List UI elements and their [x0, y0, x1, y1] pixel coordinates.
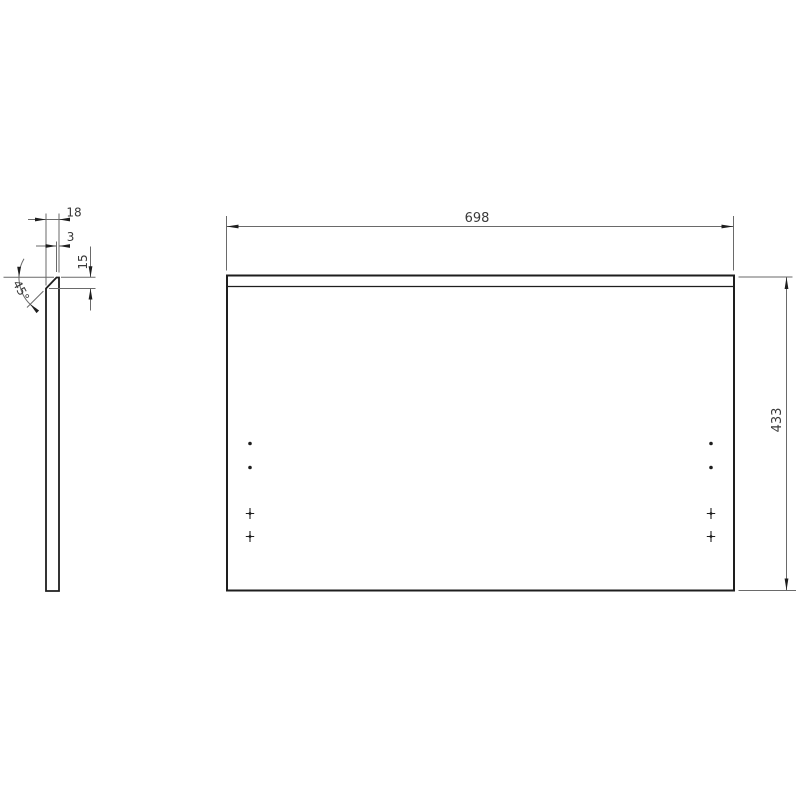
arrow-down-icon: [17, 267, 21, 278]
panel-outline: [227, 276, 734, 591]
hole-mark-dot: [248, 442, 252, 446]
dim-thickness-label: 18: [66, 206, 81, 220]
hole-mark-dot: [709, 442, 713, 446]
dim-front-width: 698: [227, 211, 734, 271]
dim-front-height: 433: [739, 277, 797, 591]
side-profile-outline: [46, 278, 59, 592]
arrow-left-icon: [59, 244, 70, 248]
hole-mark-cross-center: [249, 535, 252, 538]
dim-top-flat: 3: [36, 230, 74, 272]
hole-mark-cross-center: [710, 512, 713, 515]
hole-mark-cross-center: [249, 512, 252, 515]
arrow-right-icon: [722, 225, 734, 229]
arrow-right-icon: [35, 218, 46, 222]
arrow-up-left-icon: [30, 304, 39, 313]
dim-front-height-label: 433: [770, 408, 785, 433]
arrow-down-icon: [785, 579, 789, 591]
arrow-up-icon: [785, 277, 789, 289]
drawing-canvas: 18 3 15 45°: [0, 0, 800, 800]
arrow-up-icon: [89, 289, 93, 300]
hole-mark-cross-center: [710, 535, 713, 538]
dim-top-flat-label: 3: [67, 230, 75, 244]
front-view: [227, 276, 734, 591]
arrow-left-icon: [227, 225, 239, 229]
hole-mark-dot: [248, 466, 252, 470]
dim-chamfer-angle-label: 45°: [10, 278, 32, 303]
side-profile-view: [46, 278, 59, 592]
hole-mark-dot: [709, 466, 713, 470]
dim-front-width-label: 698: [465, 211, 490, 226]
dim-chamfer-depth-label: 15: [76, 254, 90, 269]
arrow-right-icon: [46, 244, 57, 248]
technical-drawing: 18 3 15 45°: [0, 0, 800, 800]
